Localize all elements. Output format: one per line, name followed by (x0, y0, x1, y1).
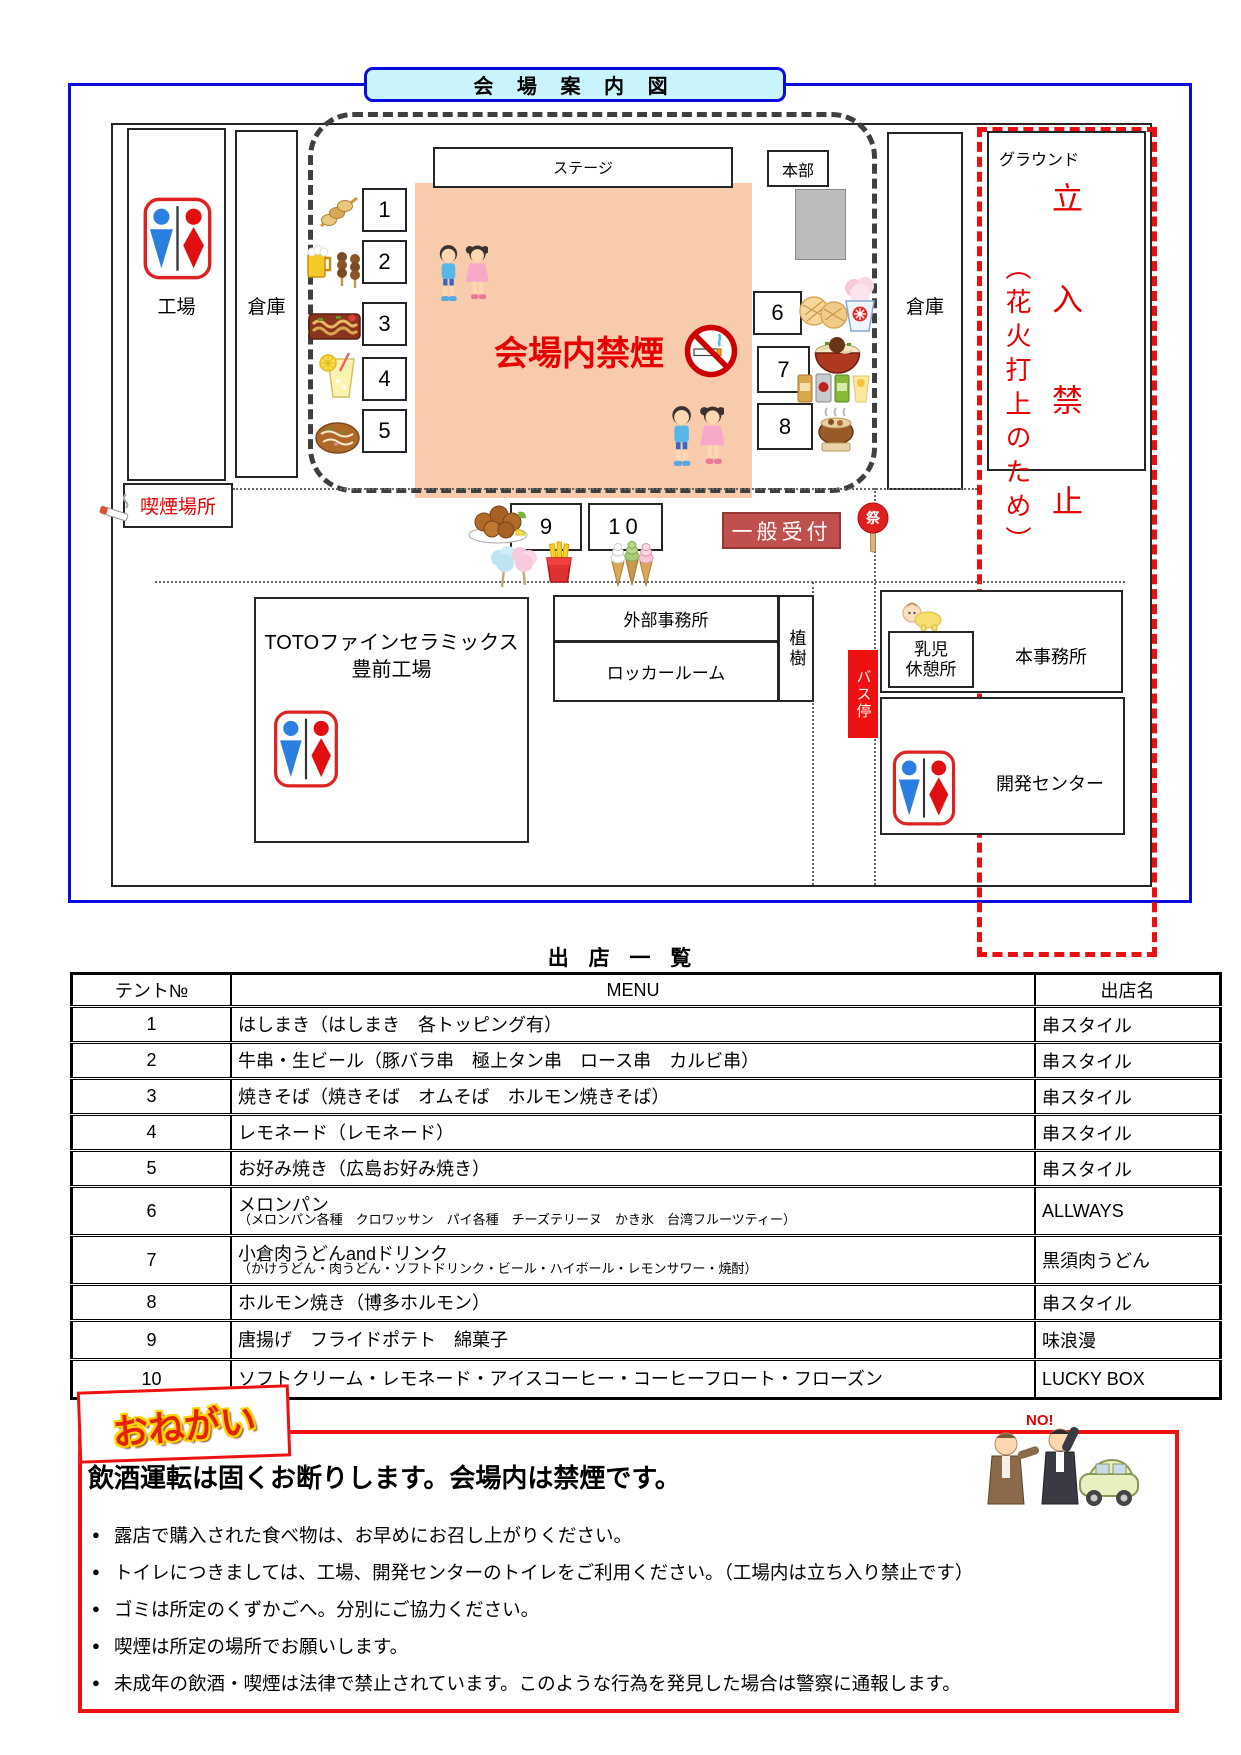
header-shop: 出店名 (1035, 974, 1221, 1007)
cell-menu: ホルモン焼き（博多ホルモン） (231, 1285, 1035, 1321)
nursery-label-line2: 休憩所 (906, 660, 957, 679)
tent-number: 8 (779, 414, 791, 440)
bullet-icon: ● (92, 1596, 114, 1621)
table-row: 6 メロンパン（メロンパン各種 クロワッサン パイ各種 チーズテリーヌ かき氷 … (72, 1187, 1221, 1236)
lemonade-icon (316, 351, 362, 403)
smoking-area-label: 喫煙場所 (140, 492, 216, 519)
bullet-icon: ● (92, 1559, 114, 1584)
cell-tent-no: 2 (72, 1043, 232, 1079)
factory-label: 工場 (127, 292, 226, 319)
okonomiyaki-icon (313, 416, 362, 458)
vendor-table: テント№ MENU 出店名 1 はしまき（はしまき 各トッピング有） 串スタイル… (70, 972, 1222, 1400)
festival-guide-page: 工場 倉庫 会 場 案 内 図 ステージ 本部 会場内禁煙 (0, 0, 1241, 1755)
hq-box: 本部 (767, 150, 829, 187)
bus-stop-label: バス停 (853, 669, 874, 720)
cotton-candy-icon (489, 545, 539, 588)
header-tent-no: テント№ (72, 974, 232, 1007)
external-office-label: 外部事務所 (624, 606, 709, 631)
vendor-list-title: 出 店 一 覧 (70, 942, 1176, 972)
bullet-icon: ● (92, 1522, 114, 1547)
tent-number: 2 (378, 249, 390, 275)
table-row: 9 唐揚げ フライドポテト 綿菓子 味浪漫 (72, 1321, 1221, 1360)
kids-icon (434, 242, 488, 306)
cell-shop: 串スタイル (1035, 1079, 1221, 1115)
hq-label: 本部 (782, 157, 814, 181)
keepout-text: 立入禁止 (1042, 182, 1087, 586)
cell-shop: LUCKY BOX (1035, 1360, 1221, 1399)
bus-stop-box: バス停 (848, 650, 878, 738)
cell-menu: はしまき（はしまき 各トッピング有） (231, 1007, 1035, 1043)
dev-center-label: 開発センター (980, 770, 1120, 796)
toto-label-line2: 豊前工場 (352, 659, 432, 681)
toto-label: TOTOファインセラミックス 豊前工場 (254, 630, 529, 684)
cell-menu: お好み焼き（広島お好み焼き） (231, 1151, 1035, 1187)
cell-menu: レモネード（レモネード） (231, 1115, 1035, 1151)
toilet-icon (892, 750, 956, 826)
smoking-area-box: 喫煙場所 (123, 483, 233, 528)
karaage-icon (466, 502, 530, 544)
festival-fan-icon: 祭 (854, 502, 892, 554)
vendor-table-header: テント№ MENU 出店名 (72, 974, 1221, 1007)
cell-tent-no: 8 (72, 1285, 232, 1321)
cell-menu: 牛串・生ビール（豚バラ串 極上タン串 ロース串 カルビ串） (231, 1043, 1035, 1079)
table-row: 8 ホルモン焼き（博多ホルモン） 串スタイル (72, 1285, 1221, 1321)
beer-yakitori-icon (305, 240, 367, 288)
tent-number: 5 (378, 418, 390, 444)
baby-icon (901, 598, 943, 632)
tent-number: 9 (540, 514, 552, 540)
notice-heading: 飲酒運転は固くお断りします。会場内は禁煙です。 (88, 1458, 968, 1495)
tent-number: 4 (378, 366, 390, 392)
planting-label: 植樹 (784, 629, 809, 669)
list-item: ● 喫煙は所定の場所でお願いします。 (92, 1633, 1167, 1670)
cell-tent-no: 5 (72, 1151, 232, 1187)
list-item: ● 露店で購入された食べ物は、お早めにお召し上がりください。 (92, 1522, 1167, 1559)
tent-box-6: 6 (753, 291, 802, 335)
stage-label: ステージ (553, 157, 613, 178)
page-title: 会 場 案 内 図 (364, 67, 786, 102)
hotpot-icon (813, 406, 859, 454)
cell-tent-no: 7 (72, 1236, 232, 1285)
cell-shop: 串スタイル (1035, 1115, 1221, 1151)
tent-number: 7 (777, 357, 789, 383)
no-smoking-text: 会場内禁煙 (494, 326, 664, 375)
cell-shop: 味浪漫 (1035, 1321, 1221, 1360)
reception-label: 一般受付 (732, 516, 832, 546)
tent-box-5: 5 (362, 409, 407, 453)
hq-gray-block (795, 189, 846, 260)
cell-shop: 黒須肉うどん (1035, 1236, 1221, 1285)
list-item: ● トイレにつきましては、工場、開発センターのトイレをご利用ください。（工場内は… (92, 1559, 1167, 1596)
svg-text:祭: 祭 (865, 510, 881, 526)
cell-tent-no: 9 (72, 1321, 232, 1360)
table-row: 2 牛串・生ビール（豚バラ串 極上タン串 ロース串 カルビ串） 串スタイル (72, 1043, 1221, 1079)
list-item: ● ゴミは所定のくずかごへ。分別にご協力ください。 (92, 1596, 1167, 1633)
locker-room-box: ロッカールーム (553, 641, 779, 702)
main-office-label: 本事務所 (985, 643, 1117, 669)
notice-label-box: おねがい (77, 1384, 291, 1463)
cell-menu: 焼きそば（焼きそば オムそば ホルモン焼きそば） (231, 1079, 1035, 1115)
list-item: ● 未成年の飲酒・喫煙は法律で禁止されています。このような行為を発見した場合は警… (92, 1670, 1167, 1707)
cell-tent-no: 4 (72, 1115, 232, 1151)
table-row: 4 レモネード（レモネード） 串スタイル (72, 1115, 1221, 1151)
shaved-ice-icon (841, 274, 879, 334)
header-menu: MENU (231, 974, 1035, 1007)
table-row: 1 はしまき（はしまき 各トッピング有） 串スタイル (72, 1007, 1221, 1043)
tent-box-2: 2 (362, 240, 407, 284)
cell-shop: 串スタイル (1035, 1043, 1221, 1079)
no-drink-drive-icon: NO! (968, 1412, 1143, 1524)
path-dotted-line (233, 488, 977, 490)
notice-label: おねがい (110, 1392, 258, 1456)
toilet-icon (143, 195, 212, 282)
cigarette-icon (96, 486, 138, 528)
tent-box-3: 3 (362, 302, 407, 346)
cell-menu: 小倉肉うどんandドリンク（かけうどん・肉うどん・ソフトドリンク・ビール・ハイボ… (231, 1236, 1035, 1285)
tent-number: 6 (771, 300, 783, 326)
planting-box: 植樹 (778, 595, 814, 702)
tent-number: 3 (378, 311, 390, 337)
no-smoking-icon (684, 324, 738, 378)
bullet-icon: ● (92, 1633, 114, 1658)
bullet-text: 未成年の飲酒・喫煙は法律で禁止されています。このような行為を発見した場合は警察に… (114, 1670, 961, 1696)
toilet-icon (272, 710, 340, 788)
cell-tent-no: 6 (72, 1187, 232, 1236)
table-row: 7 小倉肉うどんandドリンク（かけうどん・肉うどん・ソフトドリンク・ビール・ハ… (72, 1236, 1221, 1285)
bullet-text: ゴミは所定のくずかごへ。分別にご協力ください。 (114, 1596, 539, 1622)
cell-shop: 串スタイル (1035, 1285, 1221, 1321)
cell-menu: ソフトクリーム・レモネード・アイスコーヒー・コーヒーフロート・フローズン (231, 1360, 1035, 1399)
cell-tent-no: 1 (72, 1007, 232, 1043)
cell-shop: 串スタイル (1035, 1151, 1221, 1187)
stage-box: ステージ (433, 147, 733, 188)
locker-room-label: ロッカールーム (607, 659, 726, 684)
table-row: 5 お好み焼き（広島お好み焼き） 串スタイル (72, 1151, 1221, 1187)
kids-icon (666, 404, 724, 470)
drinks-icon (796, 371, 872, 404)
external-office-box: 外部事務所 (553, 595, 779, 642)
notice-bullets: ● 露店で購入された食べ物は、お早めにお召し上がりください。 ● トイレにつきま… (92, 1522, 1167, 1707)
fries-icon (539, 540, 578, 584)
keepout-reason-text: （花火打上のため） (999, 254, 1036, 560)
cell-shop: ALLWAYS (1035, 1187, 1221, 1236)
skewer-icon (315, 192, 361, 232)
softcream-icon (608, 536, 657, 588)
warehouse-left-label: 倉庫 (235, 292, 298, 319)
toto-label-line1: TOTOファインセラミックス (264, 632, 518, 654)
warehouse-right-label: 倉庫 (887, 292, 963, 319)
tent-box-1: 1 (362, 188, 407, 232)
bullet-text: 喫煙は所定の場所でお願いします。 (114, 1633, 408, 1659)
reception-box: 一般受付 (722, 512, 841, 549)
bullet-icon: ● (92, 1670, 114, 1695)
bullet-text: トイレにつきましては、工場、開発センターのトイレをご利用ください。（工場内は立ち… (114, 1559, 973, 1585)
ground-label: グラウンド (999, 146, 1079, 170)
yakisoba-icon (306, 306, 363, 344)
table-row: 3 焼きそば（焼きそば オムそば ホルモン焼きそば） 串スタイル (72, 1079, 1221, 1115)
nursery-label: 乳児 休憩所 (906, 640, 957, 680)
nursery-box: 乳児 休憩所 (888, 631, 974, 688)
cell-menu: 唐揚げ フライドポテト 綿菓子 (231, 1321, 1035, 1360)
tent-box-4: 4 (362, 357, 407, 401)
tent-number: 1 (378, 197, 390, 223)
nursery-label-line1: 乳児 (914, 640, 948, 659)
cell-tent-no: 3 (72, 1079, 232, 1115)
cell-shop: 串スタイル (1035, 1007, 1221, 1043)
cell-menu: メロンパン（メロンパン各種 クロワッサン パイ各種 チーズテリーヌ かき氷 台湾… (231, 1187, 1035, 1236)
tent-box-8: 8 (757, 403, 813, 450)
bullet-text: 露店で購入された食べ物は、お早めにお召し上がりください。 (114, 1522, 632, 1548)
